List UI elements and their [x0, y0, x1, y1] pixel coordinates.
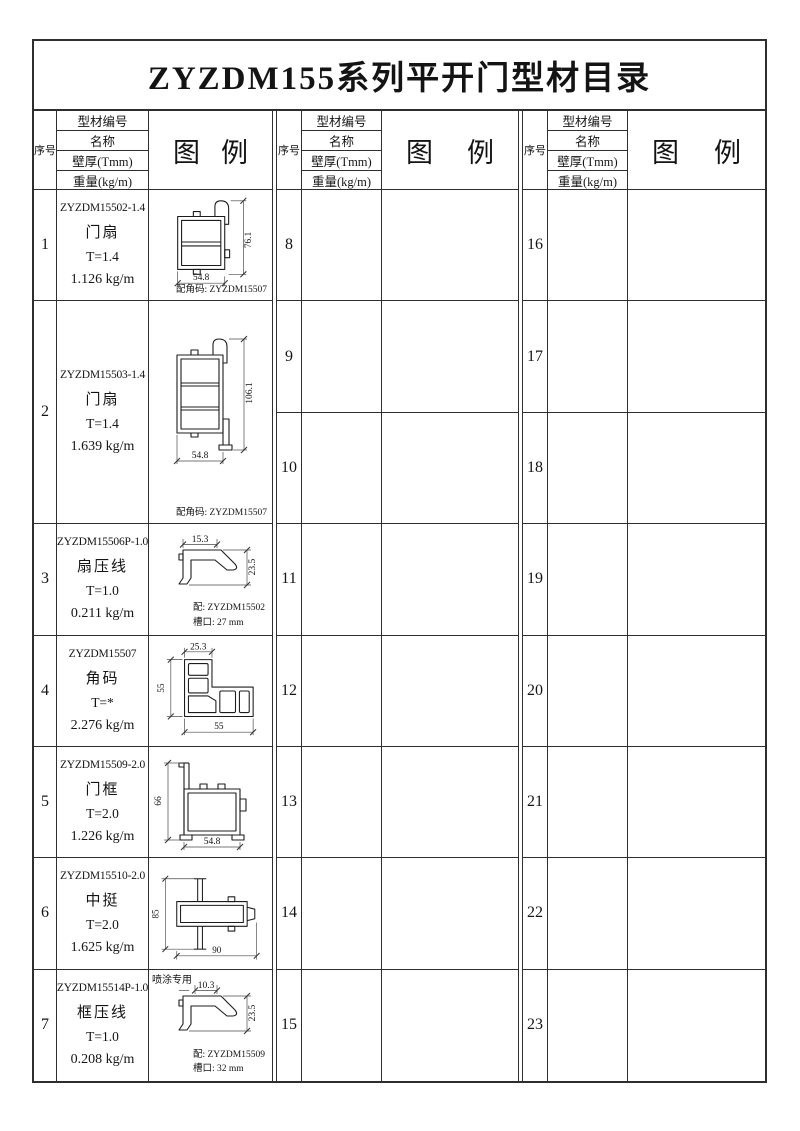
profile-name: 门框: [85, 778, 119, 799]
match-code-note: 配: ZYZDM15502: [193, 601, 265, 616]
profile-name: 门扇: [85, 388, 119, 409]
header-thickness: 壁厚(Tmm): [548, 151, 627, 171]
sash-bead-profile-diagram: 15.3 23.5: [155, 534, 267, 602]
column-group-2: 序号 型材编号 名称 壁厚(Tmm) 重量(kg/m) 图 例 8 9 10 1…: [277, 111, 518, 1081]
legend-cell-empty: [628, 190, 765, 301]
info-cell: ZYZDM15507 角码 T=* 2.276 kg/m: [57, 636, 149, 747]
legend-cell: 66 54.8: [149, 747, 272, 858]
header-info: 型材编号 名称 壁厚(Tmm) 重量(kg/m): [57, 111, 149, 190]
info-cell: ZYZDM15510-2.0 中挺 T=2.0 1.625 kg/m: [57, 858, 149, 969]
info-cell-empty: [548, 858, 628, 969]
profile-thickness: T=*: [91, 695, 114, 711]
header-weight: 重量(kg/m): [57, 171, 148, 190]
corner-key-diagram: 25.3 55 55: [151, 642, 271, 740]
profile-weight: 1.126 kg/m: [71, 272, 135, 288]
corner-code-note: 配角码: ZYZDM15507: [176, 504, 267, 518]
slot-width-note: 槽口: 27 mm: [193, 616, 265, 631]
profile-thickness: T=2.0: [86, 917, 119, 933]
header-legend: 图 例: [382, 111, 518, 190]
seq-cell: 5: [34, 747, 57, 858]
info-cell: ZYZDM15502-1.4 门扇 T=1.4 1.126 kg/m: [57, 190, 149, 301]
legend-cell-empty: [628, 747, 765, 858]
info-cell-empty: [302, 636, 382, 747]
profile-weight: 1.625 kg/m: [71, 940, 135, 956]
header-info: 型材编号 名称 壁厚(Tmm) 重量(kg/m): [302, 111, 382, 190]
header-name: 名称: [302, 131, 381, 151]
header-seq: 序号: [277, 111, 302, 190]
catalog-table: 序号 型材编号 名称 壁厚(Tmm) 重量(kg/m) 图 例 1 ZYZDM1…: [34, 111, 765, 1081]
profile-code: ZYZDM15502-1.4: [60, 202, 145, 214]
seq-cell: 23: [523, 970, 548, 1081]
seq-cell: 1: [34, 190, 57, 301]
legend-char-right: 例: [714, 131, 741, 170]
dim-label: 23.5: [248, 559, 258, 576]
spray-coating-note: 喷涂专用: [152, 971, 192, 986]
legend-cell: 76.1 54.8 配角码: ZYZDM15507: [149, 190, 272, 301]
drawing-frame: ZYZDM155系列平开门型材目录 序号 型材编号 名称 壁厚(Tmm) 重量(…: [32, 39, 767, 1083]
seq-cell: 20: [523, 636, 548, 747]
legend-cell-empty: [382, 858, 518, 969]
info-cell: ZYZDM15506P-1.0 扇压线 T=1.0 0.211 kg/m: [57, 524, 149, 635]
dim-label: 106.1: [245, 382, 255, 404]
seq-cell: 7: [34, 970, 57, 1081]
legend-char-left: 图: [652, 131, 679, 170]
legend-cell-empty: [628, 858, 765, 969]
seq-cell: 14: [277, 858, 302, 969]
legend-cell-empty: [382, 636, 518, 747]
info-cell-empty: [548, 970, 628, 1081]
legend-cell-empty: [628, 636, 765, 747]
legend-cell-empty: [628, 524, 765, 635]
profile-name: 框压线: [77, 1001, 128, 1022]
seq-cell: 9: [277, 301, 302, 412]
legend-cell-empty: [382, 747, 518, 858]
legend-cell: 15.3 23.5 配: ZYZDM15502 槽口: 27 mm: [149, 524, 272, 635]
dim-label: 54.8: [191, 451, 208, 461]
dim-label: 90: [212, 945, 222, 955]
info-cell-empty: [302, 301, 382, 412]
header-info: 型材编号 名称 壁厚(Tmm) 重量(kg/m): [548, 111, 628, 190]
info-cell-empty: [548, 301, 628, 412]
info-cell-empty: [302, 524, 382, 635]
legend-cell-empty: [628, 301, 765, 412]
info-cell-empty: [548, 636, 628, 747]
legend-cell-empty: [382, 301, 518, 412]
seq-cell: 3: [34, 524, 57, 635]
legend-char-right: 例: [467, 131, 494, 170]
seq-cell: 10: [277, 413, 302, 524]
info-cell-empty: [302, 858, 382, 969]
dim-label: 10.3: [197, 981, 214, 991]
dim-label: 76.1: [244, 232, 254, 249]
header-name: 名称: [57, 131, 148, 151]
info-cell-empty: [302, 190, 382, 301]
info-cell: ZYZDM15503-1.4 门扇 T=1.4 1.639 kg/m: [57, 301, 149, 524]
header-seq: 序号: [523, 111, 548, 190]
profile-weight: 2.276 kg/m: [71, 718, 135, 734]
profile-code: ZYZDM15503-1.4: [60, 369, 145, 381]
profile-name: 扇压线: [77, 555, 128, 576]
legend-cell-empty: [628, 970, 765, 1081]
legend-cell: 85 90: [149, 858, 272, 969]
door-sash-tall-profile-diagram: 106.1 54.8: [157, 331, 265, 471]
profile-code: ZYZDM15507: [69, 648, 137, 660]
door-sash-profile-diagram: 76.1 54.8: [155, 191, 267, 291]
info-cell-empty: [548, 190, 628, 301]
header-code: 型材编号: [302, 111, 381, 131]
seq-cell: 22: [523, 858, 548, 969]
header-seq: 序号: [34, 111, 57, 190]
header-legend: 图 例: [628, 111, 765, 190]
header-code: 型材编号: [548, 111, 627, 131]
info-cell-empty: [548, 524, 628, 635]
seq-cell: 15: [277, 970, 302, 1081]
match-notes: 配: ZYZDM15502 槽口: 27 mm: [193, 601, 265, 630]
header-code: 型材编号: [57, 111, 148, 131]
match-code-note: 配: ZYZDM15509: [193, 1048, 265, 1063]
seq-cell: 12: [277, 636, 302, 747]
profile-code: ZYZDM15509-2.0: [60, 759, 145, 771]
profile-name: 角码: [85, 667, 119, 688]
profile-code: ZYZDM15510-2.0: [60, 870, 145, 882]
profile-weight: 1.639 kg/m: [71, 439, 135, 455]
seq-cell: 8: [277, 190, 302, 301]
info-cell-empty: [548, 413, 628, 524]
dim-label: 25.3: [190, 642, 207, 652]
legend-cell: 106.1 54.8 配角码: ZYZDM15507: [149, 301, 272, 524]
legend-cell-empty: [628, 413, 765, 524]
profile-thickness: T=1.0: [86, 583, 119, 599]
legend-cell-empty: [382, 524, 518, 635]
dim-label: 23.5: [248, 1005, 258, 1022]
dim-label: 85: [152, 909, 161, 919]
seq-cell: 16: [523, 190, 548, 301]
dim-label: 54.8: [203, 837, 220, 847]
legend-cell-empty: [382, 190, 518, 301]
seq-cell: 17: [523, 301, 548, 412]
catalog-page: { "title": "ZYZDM155系列平开门型材目录", "header"…: [0, 0, 800, 1131]
legend-cell-empty: [382, 970, 518, 1081]
match-notes: 配: ZYZDM15509 槽口: 32 mm: [193, 1048, 265, 1077]
dim-label: 66: [154, 796, 164, 806]
profile-thickness: T=1.4: [86, 416, 119, 432]
legend-cell: 喷涂专用 10.3 23.5: [149, 970, 272, 1081]
profile-code: ZYZDM15514P-1.0: [57, 982, 148, 994]
legend-char-left: 图: [406, 131, 433, 170]
profile-code: ZYZDM15506P-1.0: [57, 536, 148, 548]
title-bar: ZYZDM155系列平开门型材目录: [34, 41, 765, 111]
profile-name: 中挺: [85, 889, 119, 910]
dim-label: 15.3: [191, 535, 208, 545]
profile-thickness: T=2.0: [86, 806, 119, 822]
frame-bead-profile-diagram: 10.3 23.5: [155, 980, 267, 1048]
legend-char-right: 例: [221, 131, 248, 170]
door-frame-profile-diagram: 66 54.8: [152, 751, 270, 853]
seq-cell: 4: [34, 636, 57, 747]
profile-thickness: T=1.4: [86, 249, 119, 265]
legend-char-left: 图: [173, 131, 200, 170]
seq-cell: 19: [523, 524, 548, 635]
legend-cell-empty: [382, 413, 518, 524]
dim-label: 55: [156, 683, 166, 693]
profile-name: 门扇: [85, 221, 119, 242]
seq-cell: 21: [523, 747, 548, 858]
dim-label: 55: [214, 722, 224, 732]
mullion-profile-diagram: 85 90: [152, 863, 270, 963]
header-thickness: 壁厚(Tmm): [57, 151, 148, 171]
info-cell-empty: [548, 747, 628, 858]
seq-cell: 13: [277, 747, 302, 858]
seq-cell: 6: [34, 858, 57, 969]
seq-cell: 18: [523, 413, 548, 524]
legend-cell: 25.3 55 55: [149, 636, 272, 747]
profile-weight: 1.226 kg/m: [71, 829, 135, 845]
info-cell: ZYZDM15509-2.0 门框 T=2.0 1.226 kg/m: [57, 747, 149, 858]
seq-cell: 2: [34, 301, 57, 524]
header-weight: 重量(kg/m): [548, 171, 627, 190]
info-cell-empty: [302, 747, 382, 858]
profile-weight: 0.211 kg/m: [71, 606, 134, 622]
header-name: 名称: [548, 131, 627, 151]
header-legend: 图 例: [149, 111, 272, 190]
info-cell-empty: [302, 413, 382, 524]
corner-code-note: 配角码: ZYZDM15507: [176, 281, 267, 295]
page-title: ZYZDM155系列平开门型材目录: [148, 51, 651, 99]
slot-width-note: 槽口: 32 mm: [193, 1062, 265, 1077]
header-thickness: 壁厚(Tmm): [302, 151, 381, 171]
profile-weight: 0.208 kg/m: [71, 1052, 135, 1068]
profile-thickness: T=1.0: [86, 1029, 119, 1045]
column-group-1: 序号 型材编号 名称 壁厚(Tmm) 重量(kg/m) 图 例 1 ZYZDM1…: [34, 111, 272, 1081]
seq-cell: 11: [277, 524, 302, 635]
header-weight: 重量(kg/m): [302, 171, 381, 190]
info-cell: ZYZDM15514P-1.0 框压线 T=1.0 0.208 kg/m: [57, 970, 149, 1081]
column-group-3: 序号 型材编号 名称 壁厚(Tmm) 重量(kg/m) 图 例 16 17 18…: [523, 111, 765, 1081]
info-cell-empty: [302, 970, 382, 1081]
